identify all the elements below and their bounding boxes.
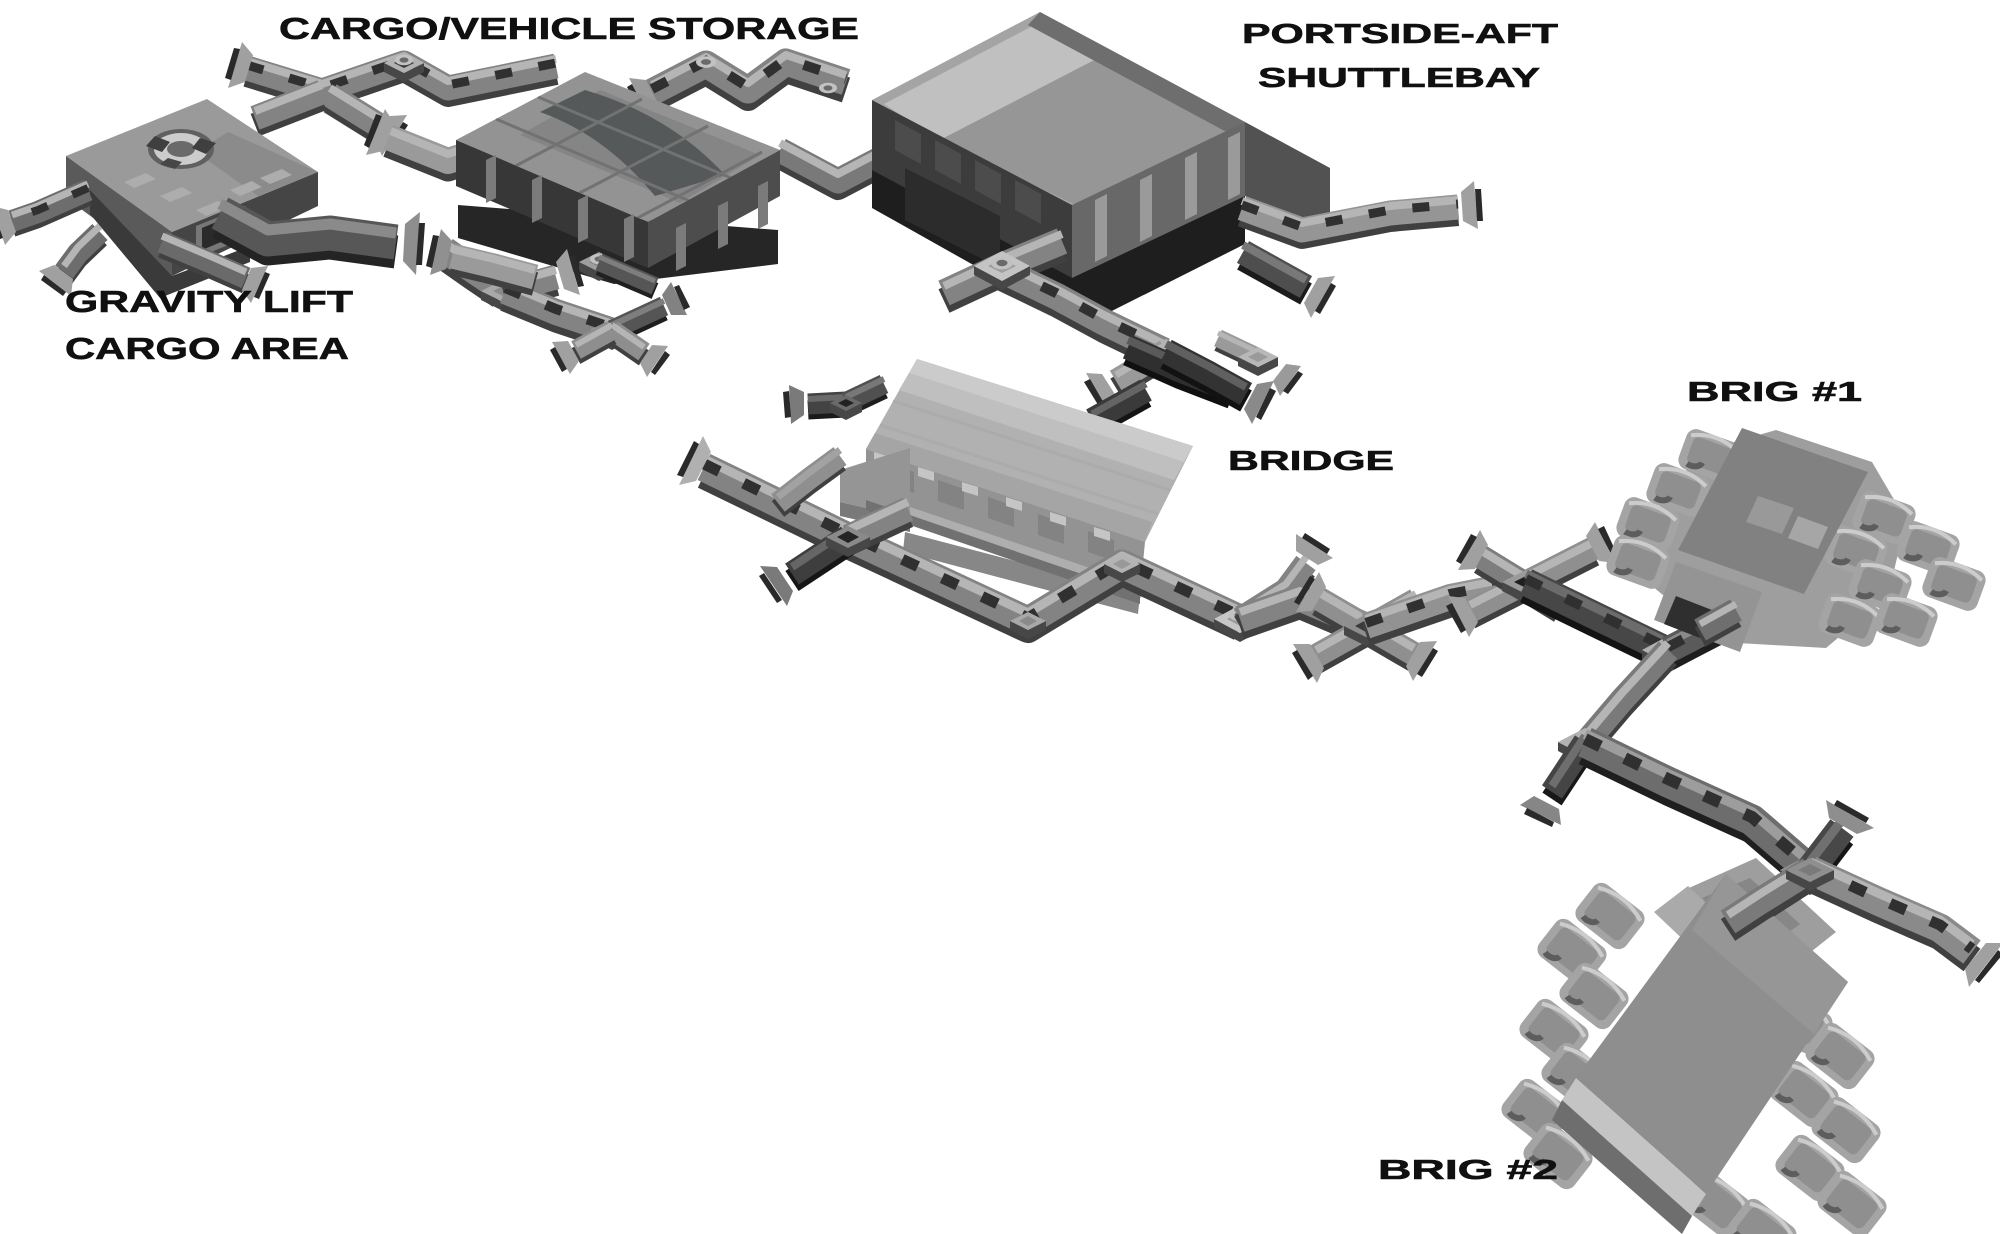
svg-text:CARGO/VEHICLE STORAGE: CARGO/VEHICLE STORAGE [279,11,859,46]
svg-text:BRIG #2: BRIG #2 [1378,1154,1558,1185]
svg-text:SHUTTLEBAY: SHUTTLEBAY [1258,62,1540,93]
svg-text:CARGO AREA: CARGO AREA [65,331,349,366]
svg-text:BRIDGE: BRIDGE [1228,445,1394,476]
svg-text:BRIG #1: BRIG #1 [1687,376,1862,407]
svg-text:GRAVITY LIFT: GRAVITY LIFT [65,284,353,319]
svg-text:PORTSIDE-AFT: PORTSIDE-AFT [1242,18,1558,49]
